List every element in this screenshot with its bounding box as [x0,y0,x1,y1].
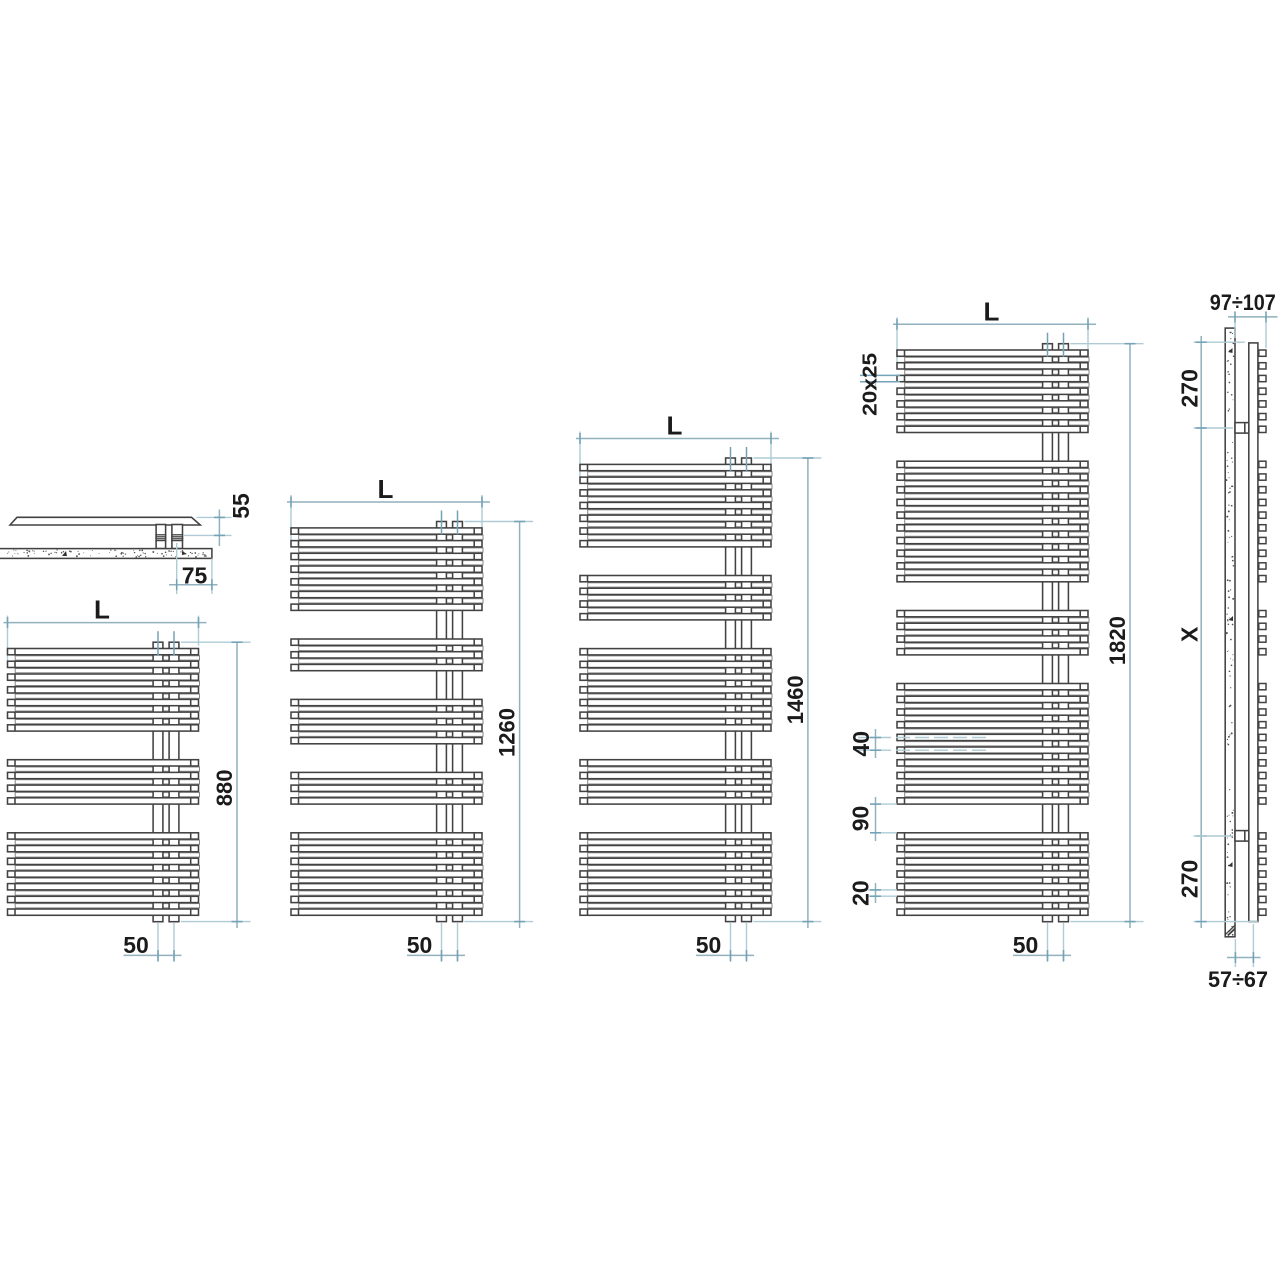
svg-text:50: 50 [407,932,433,958]
svg-text:75: 75 [182,563,208,589]
svg-text:1820: 1820 [1105,616,1130,665]
svg-text:20x25: 20x25 [860,353,882,416]
svg-text:L: L [667,411,683,441]
svg-text:880: 880 [212,770,237,807]
svg-text:50: 50 [1013,932,1039,958]
svg-text:97÷107: 97÷107 [1210,290,1276,315]
svg-text:1460: 1460 [783,675,808,724]
svg-text:X: X [1177,626,1203,642]
svg-text:270: 270 [1177,369,1203,407]
svg-text:L: L [984,296,1000,326]
svg-text:50: 50 [123,932,149,958]
svg-text:57÷67: 57÷67 [1208,967,1268,992]
svg-text:L: L [378,474,394,504]
svg-text:40: 40 [848,731,874,757]
svg-text:1260: 1260 [495,708,520,757]
svg-text:L: L [94,595,110,625]
svg-text:50: 50 [696,932,722,958]
svg-text:270: 270 [1177,860,1203,898]
svg-text:55: 55 [228,493,254,519]
svg-text:20: 20 [848,880,874,906]
svg-text:90: 90 [848,806,874,832]
